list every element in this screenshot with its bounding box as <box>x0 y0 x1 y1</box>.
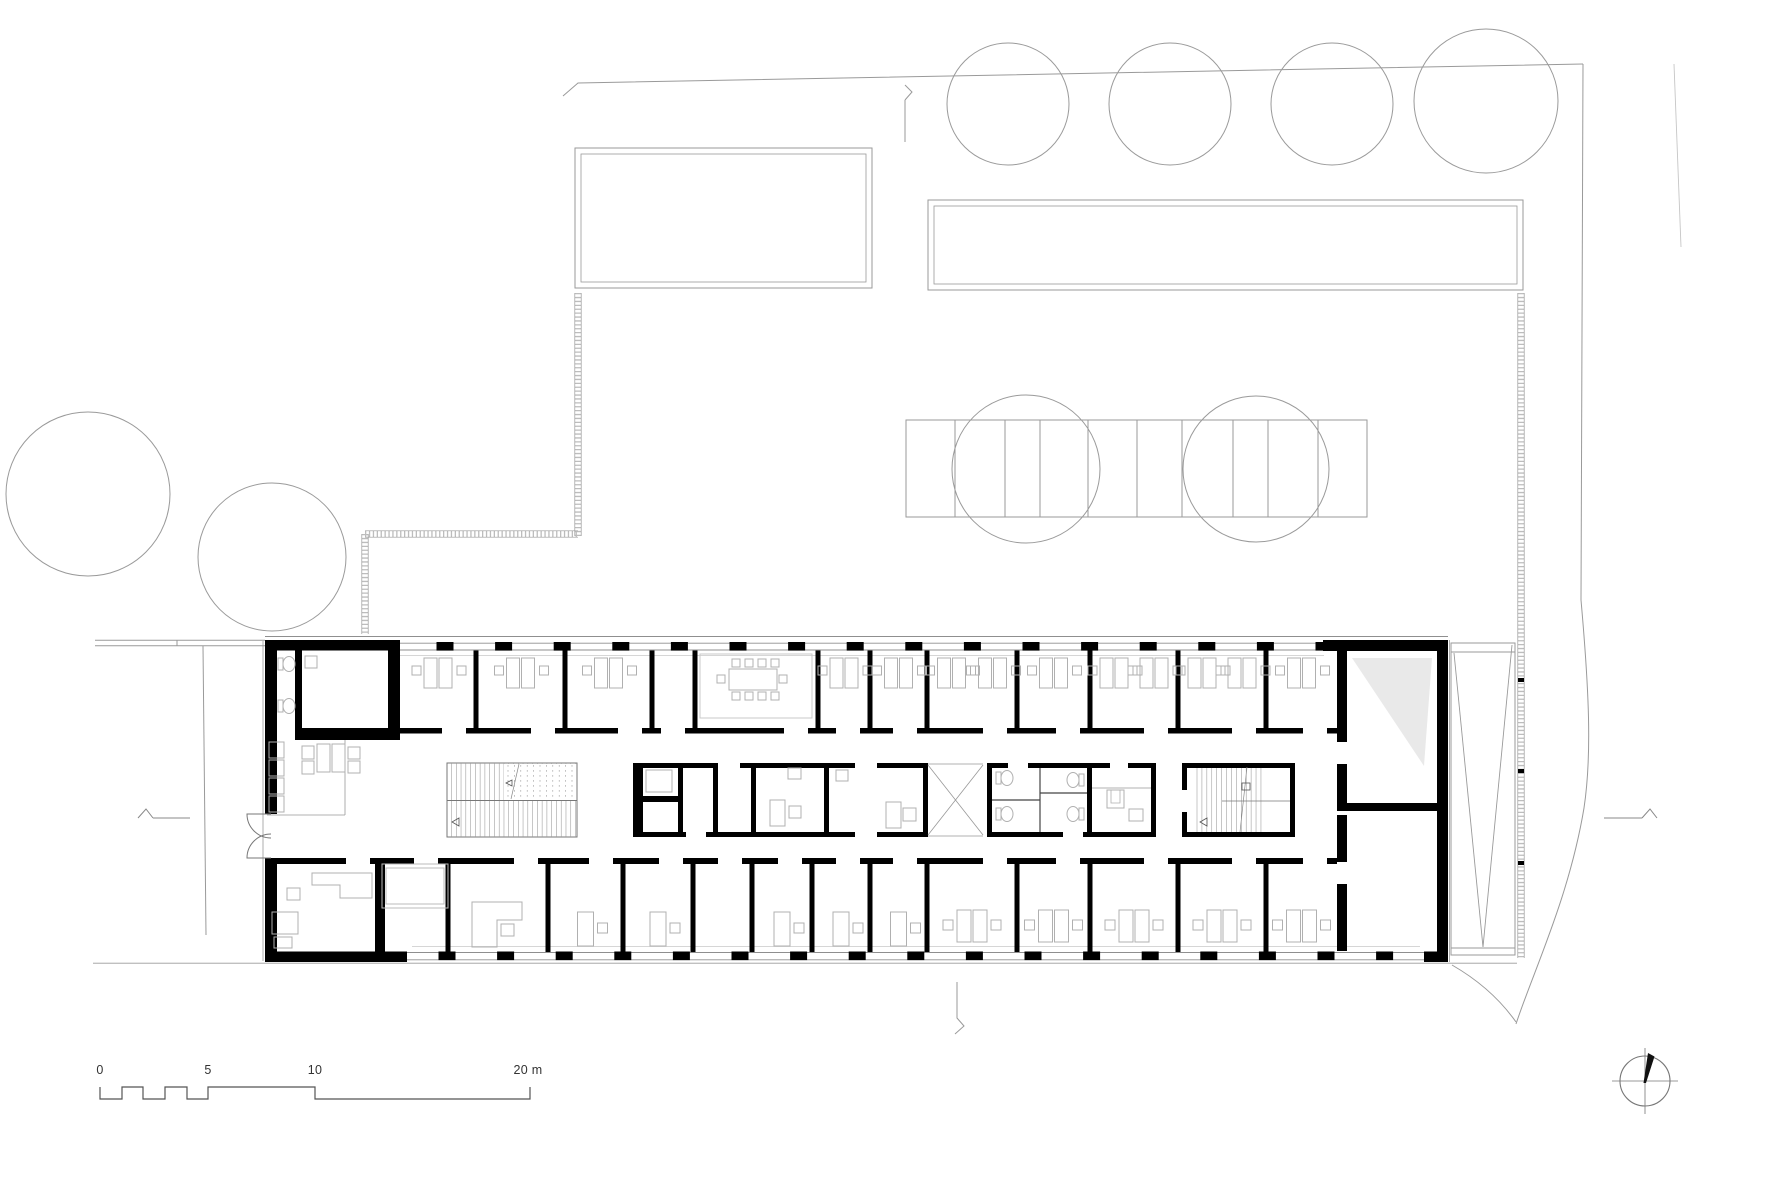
scale-label-0: 0 <box>96 1063 103 1077</box>
floor-plan-canvas <box>0 0 1772 1182</box>
scale-label-10: 10 <box>308 1063 323 1077</box>
scale-label-5: 5 <box>204 1063 211 1077</box>
floor-plan-sheet: 0 5 10 20 m <box>0 0 1772 1182</box>
building-layer <box>247 634 1515 962</box>
north-arrow-icon <box>1612 1048 1678 1114</box>
scale-label-20m: 20 m <box>514 1063 543 1077</box>
scale-bar <box>100 1087 530 1099</box>
